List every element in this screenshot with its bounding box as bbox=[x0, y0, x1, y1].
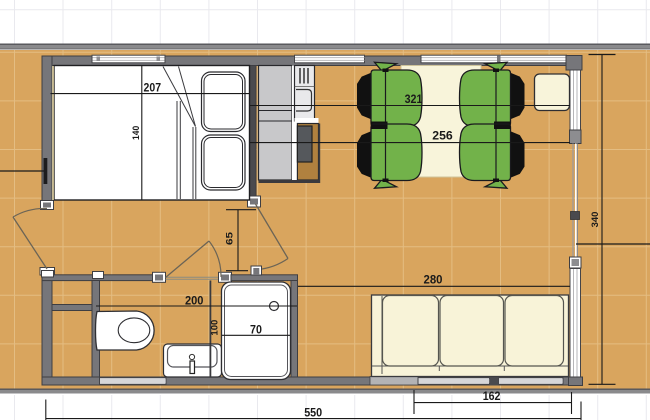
svg-text:200: 200 bbox=[185, 293, 204, 307]
svg-text:100: 100 bbox=[209, 320, 219, 336]
svg-text:340: 340 bbox=[590, 212, 600, 228]
svg-text:207: 207 bbox=[144, 80, 162, 94]
svg-text:256: 256 bbox=[432, 129, 453, 143]
svg-text:321: 321 bbox=[405, 92, 423, 106]
svg-text:140: 140 bbox=[131, 126, 141, 140]
svg-text:65: 65 bbox=[225, 232, 235, 245]
svg-text:70: 70 bbox=[250, 323, 262, 337]
svg-text:162: 162 bbox=[483, 389, 501, 403]
svg-text:280: 280 bbox=[424, 272, 443, 286]
svg-text:550: 550 bbox=[304, 406, 322, 420]
